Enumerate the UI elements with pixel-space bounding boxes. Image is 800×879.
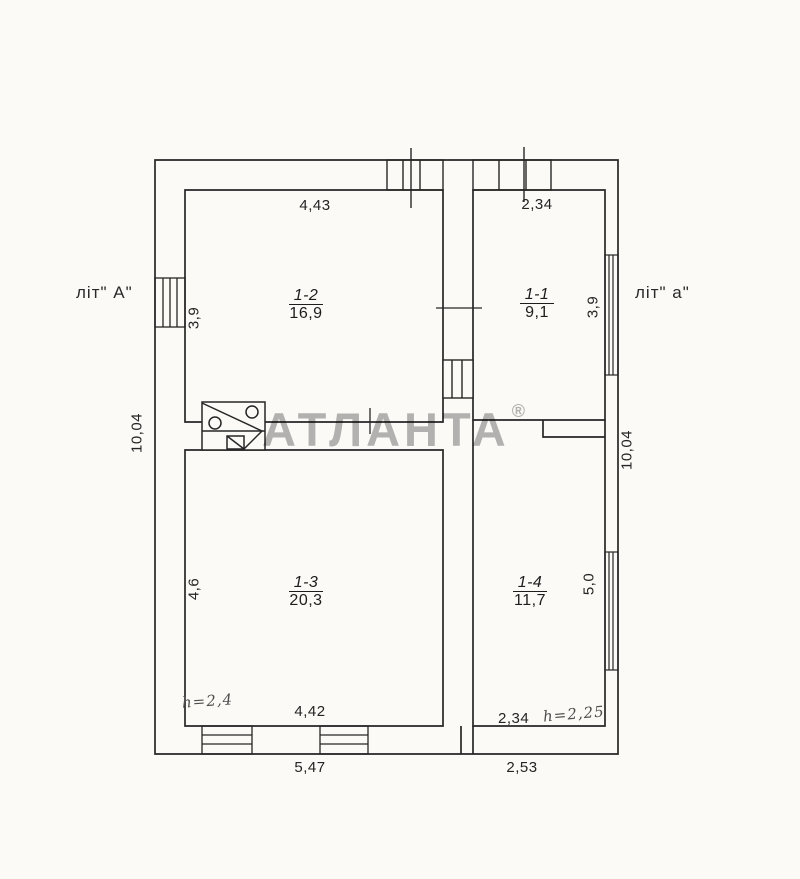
dimension-bottom-right-width: 2,34 bbox=[498, 710, 529, 727]
door-opening-symbol bbox=[473, 147, 551, 202]
dimension-top-right-width: 2,34 bbox=[507, 196, 567, 213]
window-symbol bbox=[605, 552, 618, 670]
agency-watermark: АТЛАНТА® bbox=[262, 404, 523, 456]
window-symbol bbox=[155, 278, 185, 327]
dimension-left-total-height: 10,04 bbox=[129, 413, 146, 453]
room-label-1-1: 1-1 9,1 bbox=[505, 286, 569, 321]
window-symbol bbox=[202, 726, 252, 754]
ceiling-height-note-left: h=2,4 bbox=[181, 690, 233, 712]
dimension-right-total-height: 10,04 bbox=[619, 430, 636, 470]
registered-trademark-icon: ® bbox=[512, 401, 525, 421]
dimension-right-lower-height: 5,0 bbox=[581, 573, 598, 595]
scanned-floor-plan-page: АТЛАНТА® літ" А" літ" а" 1-2 16,9 1-1 9,… bbox=[0, 0, 800, 879]
room-label-1-2: 1-2 16,9 bbox=[274, 287, 338, 322]
dimension-bottom-total-right: 2,53 bbox=[492, 759, 552, 776]
walls bbox=[155, 160, 618, 754]
building-label-right: літ" а" bbox=[635, 283, 690, 303]
dimension-bottom-total-left: 5,47 bbox=[280, 759, 340, 776]
agency-watermark-text: АТЛАНТА bbox=[262, 403, 510, 456]
room-area: 11,7 bbox=[498, 593, 562, 609]
dimension-bottom-left-width: 4,42 bbox=[280, 703, 340, 720]
dimension-left-lower-height: 4,6 bbox=[186, 578, 203, 600]
room-area: 16,9 bbox=[274, 306, 338, 322]
room-area: 20,3 bbox=[274, 593, 338, 609]
door-opening-symbol bbox=[387, 148, 443, 208]
stove-symbol bbox=[202, 402, 265, 450]
room-number: 1-3 bbox=[289, 575, 324, 592]
room-number: 1-4 bbox=[513, 575, 548, 592]
dimension-left-upper-height: 3,9 bbox=[186, 307, 203, 329]
window-symbol bbox=[320, 726, 368, 754]
dimension-top-left-width: 4,43 bbox=[285, 197, 345, 214]
dimension-right-upper-height: 3,9 bbox=[585, 296, 602, 318]
door-opening-symbol bbox=[443, 360, 473, 398]
room-number: 1-1 bbox=[520, 287, 555, 304]
room-label-1-4: 1-4 11,7 bbox=[498, 574, 562, 609]
room-number: 1-2 bbox=[289, 288, 324, 305]
room-area: 9,1 bbox=[505, 305, 569, 321]
window-symbol bbox=[605, 255, 618, 375]
room-label-1-3: 1-3 20,3 bbox=[274, 574, 338, 609]
building-label-left: літ" А" bbox=[76, 283, 133, 303]
